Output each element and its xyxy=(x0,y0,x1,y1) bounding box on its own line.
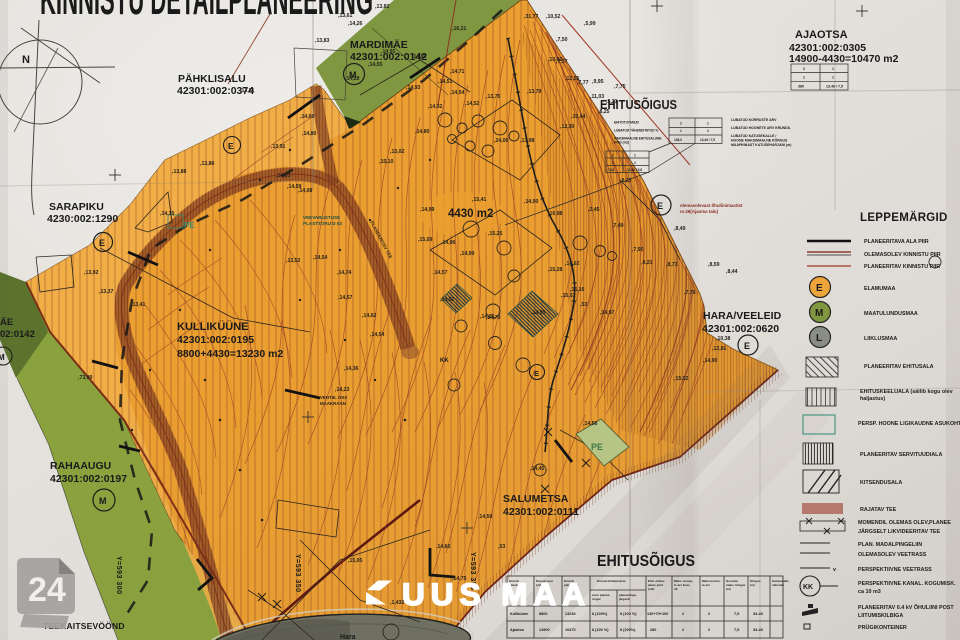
svg-text:4430 m2: 4430 m2 xyxy=(448,208,493,220)
svg-text:,15,02: ,15,02 xyxy=(561,293,576,299)
svg-text:haljastus): haljastus) xyxy=(860,396,885,402)
svg-text:,14,36: ,14,36 xyxy=(344,366,359,372)
svg-text:,10,52: ,10,52 xyxy=(546,14,561,20)
svg-text:OLEMASOLEV KINNISTU PIIR: OLEMASOLEV KINNISTU PIIR xyxy=(864,252,941,258)
svg-text:2: 2 xyxy=(682,612,684,616)
svg-text:Ajaotsa: Ajaotsa xyxy=(510,628,525,632)
svg-text:,15,02: ,15,02 xyxy=(674,376,689,382)
svg-text:8 (100 %): 8 (100 %) xyxy=(620,612,637,616)
svg-text:HARA/VEELEID: HARA/VEELEID xyxy=(703,310,782,322)
svg-text:,14,90: ,14,90 xyxy=(703,358,718,364)
svg-text:ÄE: ÄE xyxy=(0,317,13,328)
svg-text:ringut: ringut xyxy=(592,597,601,601)
svg-text:2: 2 xyxy=(612,154,614,158)
svg-text:13,46 / 7,5: 13,46 / 7,5 xyxy=(700,138,715,142)
svg-text:,14,15: ,14,15 xyxy=(160,211,175,217)
svg-text:,5,99: ,5,99 xyxy=(584,21,596,27)
svg-text:13230: 13230 xyxy=(565,612,576,616)
svg-text:(m2): (m2) xyxy=(648,587,654,591)
svg-text:,14,95: ,14,95 xyxy=(381,49,396,55)
svg-text:,14,50: ,14,50 xyxy=(478,514,493,520)
svg-text:1: 1 xyxy=(803,76,805,80)
svg-text:,14,52: ,14,52 xyxy=(465,101,480,107)
svg-text:7,5: 7,5 xyxy=(734,612,739,616)
svg-text:33-45: 33-45 xyxy=(753,628,763,632)
svg-text:42301:002:0195: 42301:002:0195 xyxy=(177,334,254,346)
svg-text:,53: ,53 xyxy=(498,544,505,550)
svg-text:,14,26: ,14,26 xyxy=(348,21,363,27)
svg-text:PLASTTORU D 63: PLASTTORU D 63 xyxy=(303,221,342,226)
svg-text:MAAPINNAST KATUSEHARJANI (m): MAAPINNAST KATUSEHARJANI (m) xyxy=(731,143,791,147)
svg-text:,13,61: ,13,61 xyxy=(338,13,353,19)
svg-text:PLANEERITAV EHITUSALA: PLANEERITAV EHITUSALA xyxy=(864,364,934,370)
svg-text:OLEMASOLEV VEETRASS: OLEMASOLEV VEETRASS xyxy=(858,552,927,558)
svg-text:Hara: Hara xyxy=(340,634,356,640)
svg-text:EHITUSKEELUALA (säilib kogu ol: EHITUSKEELUALA (säilib kogu olev xyxy=(860,389,953,395)
svg-text:4230:002:1290: 4230:002:1290 xyxy=(47,213,118,225)
svg-text:KK: KK xyxy=(803,584,813,591)
svg-text:14900: 14900 xyxy=(539,628,550,632)
svg-text:vahemik: vahemik xyxy=(772,583,784,587)
svg-text:138,0: 138,0 xyxy=(674,138,682,142)
svg-text:(m): (m) xyxy=(750,583,755,587)
svg-text:,14,93: ,14,93 xyxy=(406,85,421,91)
svg-text:AJAOTSA: AJAOTSA xyxy=(795,29,848,41)
svg-text:PLANEERITAV 0.4 kV ÕHULIINI PO: PLANEERITAV 0.4 kV ÕHULIINI POST xyxy=(858,604,954,611)
svg-text:LUBATUD KATUSEKALLE /: LUBATUD KATUSEKALLE / xyxy=(731,134,776,138)
svg-text:v: v xyxy=(833,567,836,573)
svg-text:SARAPIKU: SARAPIKU xyxy=(49,201,104,213)
svg-text:,13,86: ,13,86 xyxy=(200,161,215,167)
svg-text:te arv: te arv xyxy=(702,583,710,587)
svg-text:nr.29(Ajaotsa talu): nr.29(Ajaotsa talu) xyxy=(680,209,719,214)
svg-text:LIITUMISKILBIGA: LIITUMISKILBIGA xyxy=(858,613,903,619)
svg-text:,15,25: ,15,25 xyxy=(488,231,503,237)
svg-text:,73,99: ,73,99 xyxy=(78,375,93,381)
svg-text:,12,55: ,12,55 xyxy=(565,76,580,82)
svg-text:KK: KK xyxy=(440,358,449,364)
svg-text:SALUMETSA: SALUMETSA xyxy=(503,493,569,505)
svg-text:järgselt: järgselt xyxy=(618,597,630,601)
svg-text:,14,57: ,14,57 xyxy=(338,295,353,301)
svg-text:MAAKRAAN: MAAKRAAN xyxy=(320,401,346,406)
svg-text:,10,44: ,10,44 xyxy=(571,114,586,120)
svg-text:,10,98: ,10,98 xyxy=(548,211,563,217)
svg-text:,10,38: ,10,38 xyxy=(716,336,731,342)
svg-text:2: 2 xyxy=(708,612,710,616)
svg-text:,8,59: ,8,59 xyxy=(708,262,720,268)
svg-text:,7,49: ,7,49 xyxy=(612,223,624,229)
svg-text:,13,83: ,13,83 xyxy=(315,38,330,44)
svg-text:PLANEERITAVA ALA PIIR: PLANEERITAVA ALA PIIR xyxy=(864,239,929,245)
svg-text:1: 1 xyxy=(634,154,636,158)
svg-text:LEPPEMÄRGID: LEPPEMÄRGID xyxy=(860,211,948,224)
svg-text:E: E xyxy=(816,283,823,294)
svg-text:dil: dil xyxy=(674,587,678,591)
svg-text:,2,45: ,2,45 xyxy=(588,207,600,213)
svg-text:LUBATUD TÄHENDITATUD %: LUBATUD TÄHENDITATUD % xyxy=(614,129,658,133)
svg-text:,13,75: ,13,75 xyxy=(486,94,501,100)
svg-text:10470: 10470 xyxy=(565,628,576,632)
svg-text:KINNISTU DETAILPLANEERING: KINNISTU DETAILPLANEERING xyxy=(40,0,373,24)
svg-text:,14,45: ,14,45 xyxy=(530,466,545,472)
svg-text:JÄRGSELT LIKVIDEERITAV TEE: JÄRGSELT LIKVIDEERITAV TEE xyxy=(858,528,940,535)
svg-text:,7,75: ,7,75 xyxy=(614,84,626,90)
svg-text:M: M xyxy=(0,353,5,362)
svg-text:2: 2 xyxy=(803,67,805,71)
svg-text:,14,60: ,14,60 xyxy=(300,114,315,120)
svg-text:,14,08: ,14,08 xyxy=(298,188,313,194)
svg-text:,13,98: ,13,98 xyxy=(520,138,535,144)
svg-text:LIIKLUSMAA: LIIKLUSMAA xyxy=(864,336,897,342)
svg-text:,14,54: ,14,54 xyxy=(370,332,385,338)
svg-text:,14,57: ,14,57 xyxy=(433,270,448,276)
svg-text:33-45: 33-45 xyxy=(753,612,763,616)
svg-text:PERSPEKTIIVNE VEETRASS: PERSPEKTIIVNE VEETRASS xyxy=(858,567,932,573)
svg-text:M: M xyxy=(99,496,107,506)
svg-text:,14,96: ,14,96 xyxy=(441,240,456,246)
svg-text:,14,54: ,14,54 xyxy=(450,90,465,96)
svg-text:,10,02: ,10,02 xyxy=(548,57,563,63)
svg-text:,8,21: ,8,21 xyxy=(641,260,653,266)
svg-text:MAATULUNDUSMAA: MAATULUNDUSMAA xyxy=(864,311,918,317)
svg-text:KITSENDUSALA: KITSENDUSALA xyxy=(860,480,902,486)
svg-text:1: 1 xyxy=(612,161,614,165)
svg-text:8800+4430=13230 m2: 8800+4430=13230 m2 xyxy=(177,348,283,360)
svg-text:MOMENDIL OLEMAS OLEV,PLANEE: MOMENDIL OLEMAS OLEV,PLANEE xyxy=(858,520,951,526)
svg-text:280: 280 xyxy=(650,628,656,632)
svg-text:,7,50: ,7,50 xyxy=(556,37,568,43)
svg-text:L: L xyxy=(816,333,822,344)
svg-text:,15,41: ,15,41 xyxy=(472,197,487,203)
svg-text:EHITOTUTANUD: EHITOTUTANUD xyxy=(614,121,640,125)
svg-text:,14,80: ,14,80 xyxy=(415,129,430,135)
svg-text:24: 24 xyxy=(28,571,66,609)
svg-text:130+70+100: 130+70+100 xyxy=(647,612,668,616)
svg-text:2: 2 xyxy=(634,161,636,165)
svg-text:UUS MAA: UUS MAA xyxy=(402,576,591,612)
svg-text:,31,77: ,31,77 xyxy=(524,14,539,20)
svg-text:E: E xyxy=(744,341,750,351)
svg-text:2: 2 xyxy=(708,628,710,632)
svg-text:,14,71: ,14,71 xyxy=(450,69,465,75)
svg-text:Krundi ehitamisarve: Krundi ehitamisarve xyxy=(597,579,626,583)
svg-text:N: N xyxy=(22,54,30,66)
svg-text:,14,66: ,14,66 xyxy=(436,544,451,550)
svg-text:2: 2 xyxy=(680,122,682,126)
svg-text:VENTIIL D'63: VENTIIL D'63 xyxy=(320,395,348,400)
svg-text:42301:002:0111: 42301:002:0111 xyxy=(503,506,579,518)
svg-text:E: E xyxy=(99,238,105,248)
svg-text:,13,91: ,13,91 xyxy=(271,144,286,150)
svg-text:,9,95: ,9,95 xyxy=(592,79,604,85)
svg-text:,24,00: ,24,00 xyxy=(494,138,509,144)
svg-text:EHITUSÕIGUS: EHITUSÕIGUS xyxy=(597,552,695,570)
svg-text:,14,33: ,14,33 xyxy=(276,173,291,179)
svg-text:PERSPEKTIIVNE KANAL. KOGUMISK.: PERSPEKTIIVNE KANAL. KOGUMISK. xyxy=(858,581,956,587)
svg-text:RAJATAV TEE: RAJATAV TEE xyxy=(860,507,897,513)
svg-text:,14,97: ,14,97 xyxy=(600,310,615,316)
svg-text:,16,21: ,16,21 xyxy=(452,26,467,32)
svg-text:E: E xyxy=(228,141,234,151)
svg-text:73,8: 73,8 xyxy=(608,168,614,172)
svg-text:PLANEERITAV KINNISTU PIIR: PLANEERITAV KINNISTU PIIR xyxy=(864,264,940,270)
svg-text:PERSP. HOONE LIGIKAUDNE ASUKOH: PERSP. HOONE LIGIKAUDNE ASUKOHT xyxy=(858,421,960,427)
svg-text:14900-4430=10470 m2: 14900-4430=10470 m2 xyxy=(789,53,899,65)
svg-text:380: 380 xyxy=(798,84,804,88)
svg-text:,53: ,53 xyxy=(580,302,587,308)
svg-text:MARDIMÄE: MARDIMÄE xyxy=(350,38,408,51)
svg-text:M: M xyxy=(815,308,823,319)
svg-text:,12,30: ,12,30 xyxy=(560,124,575,130)
svg-text:PÄHKLISALU: PÄHKLISALU xyxy=(178,72,246,85)
svg-text:KULLIKÜÜNE: KULLIKÜÜNE xyxy=(177,320,249,333)
svg-text:Kullküüne: Kullküüne xyxy=(510,612,528,616)
svg-text:,14,92: ,14,92 xyxy=(428,104,443,110)
svg-text:,14,80: ,14,80 xyxy=(302,131,317,137)
svg-text:,13,81: ,13,81 xyxy=(240,88,255,94)
svg-text:7,5: 7,5 xyxy=(734,628,739,632)
svg-text:,14,52: ,14,52 xyxy=(440,297,455,303)
svg-text:,8,49: ,8,49 xyxy=(674,226,686,232)
svg-text:1: 1 xyxy=(707,122,709,126)
svg-text:,12,81: ,12,81 xyxy=(712,346,727,352)
svg-text:,15,28: ,15,28 xyxy=(548,267,563,273)
svg-text:ca 10 m3: ca 10 m3 xyxy=(858,589,881,595)
svg-text:,14,55: ,14,55 xyxy=(368,62,383,68)
svg-text:8 (100 %): 8 (100 %) xyxy=(592,628,609,632)
svg-text:PLANEERITAV SERVITUUDIALA: PLANEERITAV SERVITUUDIALA xyxy=(860,452,942,458)
svg-text:Y=593 350: Y=593 350 xyxy=(294,554,301,593)
svg-text:13,46 / 7,5: 13,46 / 7,5 xyxy=(826,84,843,88)
svg-text:ELAMUMAA: ELAMUMAA xyxy=(864,286,896,292)
svg-text:VEEVARUSTUSE: VEEVARUSTUSE xyxy=(303,215,340,220)
svg-text:42301:002:0197: 42301:002:0197 xyxy=(50,473,127,485)
svg-text:E: E xyxy=(657,201,663,211)
svg-text:LUBATUD KORRUSTE ARV: LUBATUD KORRUSTE ARV xyxy=(731,118,777,122)
svg-text:,15,05: ,15,05 xyxy=(348,558,363,564)
svg-text:,13,88: ,13,88 xyxy=(172,169,187,175)
svg-text:,14,90: ,14,90 xyxy=(524,199,539,205)
svg-text:PRÜGIKONTEINER: PRÜGIKONTEINER xyxy=(858,624,907,631)
svg-text:,14,99: ,14,99 xyxy=(412,54,427,60)
svg-text:,13,92: ,13,92 xyxy=(84,270,99,276)
svg-text:2: 2 xyxy=(707,129,709,133)
svg-text:PIND (m2): PIND (m2) xyxy=(614,141,629,145)
svg-text:,14,54: ,14,54 xyxy=(313,255,328,261)
svg-text:olemasolevast õhuliinimastist: olemasolevast õhuliinimastist xyxy=(680,203,743,208)
svg-text:RAHAAUGU: RAHAAUGU xyxy=(50,460,111,472)
svg-text:,13,82: ,13,82 xyxy=(375,4,390,10)
svg-text:1: 1 xyxy=(832,67,834,71)
svg-text:02:0142: 02:0142 xyxy=(0,329,35,340)
svg-text:42301:002:0620: 42301:002:0620 xyxy=(702,323,779,335)
svg-text:,15,09: ,15,09 xyxy=(418,237,433,243)
svg-text:1: 1 xyxy=(832,76,834,80)
svg-text:8 (100%): 8 (100%) xyxy=(620,628,636,632)
svg-text:,8,44: ,8,44 xyxy=(726,269,738,275)
svg-text:,13,41: ,13,41 xyxy=(131,302,146,308)
svg-text:PLAN. MADALPINGELIIN: PLAN. MADALPINGELIIN xyxy=(858,542,922,548)
svg-text:(m): (m) xyxy=(726,587,731,591)
svg-text:,15,10: ,15,10 xyxy=(379,159,394,165)
svg-text:,13,37: ,13,37 xyxy=(99,289,114,295)
svg-text:13,46 / 5,6: 13,46 / 5,6 xyxy=(627,168,642,172)
svg-text:,8,73: ,8,73 xyxy=(666,262,678,268)
svg-text:,14,74: ,14,74 xyxy=(337,270,352,276)
svg-text:8800: 8800 xyxy=(539,612,547,616)
svg-text:,14,79: ,14,79 xyxy=(486,315,501,321)
svg-text:2: 2 xyxy=(682,628,684,632)
svg-text:,14,99: ,14,99 xyxy=(420,207,435,213)
svg-text:,14,23: ,14,23 xyxy=(335,387,350,393)
svg-text:,7,95: ,7,95 xyxy=(632,247,644,253)
svg-text:8 (100%): 8 (100%) xyxy=(592,612,608,616)
svg-text:,14,99: ,14,99 xyxy=(460,251,475,257)
svg-text:E: E xyxy=(534,369,539,378)
svg-text:1: 1 xyxy=(680,129,682,133)
svg-text:,14,62: ,14,62 xyxy=(565,261,580,267)
svg-text:,14,62: ,14,62 xyxy=(362,313,377,319)
svg-text:Y=593 300: Y=593 300 xyxy=(115,556,122,595)
svg-text:,14,51: ,14,51 xyxy=(438,79,453,85)
svg-text:EHITUSÕIGUS: EHITUSÕIGUS xyxy=(600,97,677,112)
svg-text:LUBATUD HOONETE ARV KRUNDIL: LUBATUD HOONETE ARV KRUNDIL xyxy=(731,126,792,130)
svg-text:,13,79: ,13,79 xyxy=(527,89,542,95)
svg-text:,14,95: ,14,95 xyxy=(531,310,546,316)
svg-text:,7,76: ,7,76 xyxy=(684,290,696,296)
svg-text:HOONE MAKSIMAALNE KÕRGUS: HOONE MAKSIMAALNE KÕRGUS xyxy=(731,138,788,143)
svg-text:,14,56: ,14,56 xyxy=(583,421,598,427)
svg-text:,14,28: ,14,28 xyxy=(345,76,360,82)
svg-text:,13,52: ,13,52 xyxy=(286,258,301,264)
svg-text:,15,02: ,15,02 xyxy=(390,149,405,155)
